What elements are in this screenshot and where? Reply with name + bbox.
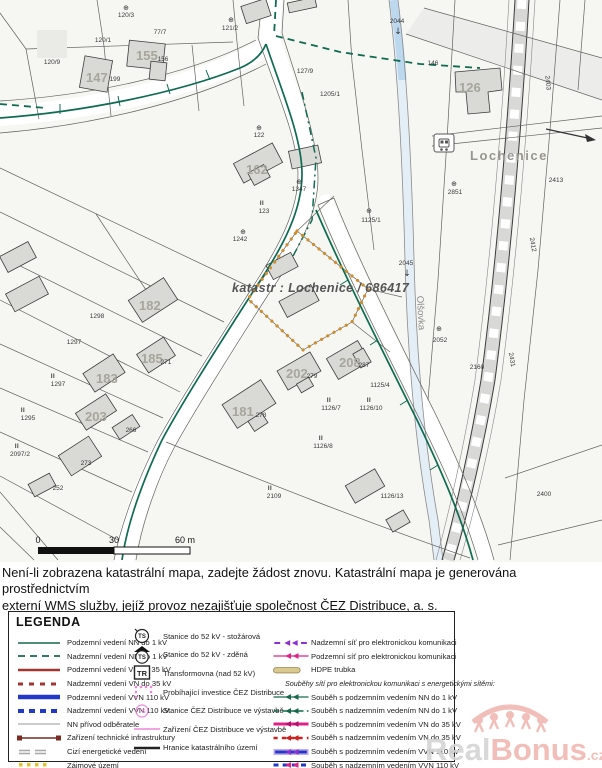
parcel-number: 1347	[292, 186, 307, 193]
svg-text:TS: TS	[138, 655, 146, 661]
legend-label: Stanice do 52 kV - stožárová	[163, 632, 260, 641]
legend-sample-foreign	[15, 746, 67, 758]
legend-label: HDPE trubka	[311, 665, 355, 674]
parcel-number: 252	[53, 485, 64, 492]
legend-item: Nadzemní vedení VVN 110 kV	[15, 704, 133, 718]
tree-symbol: ⊕	[366, 207, 372, 215]
legend-item: TSStanice do 52 kV - zděná	[133, 646, 271, 665]
parcel-number: 127/9	[297, 68, 314, 75]
parcel-number: 123	[259, 208, 270, 215]
parcel-number: 120/1	[95, 37, 112, 44]
parcel-number: 2403	[543, 75, 551, 90]
legend-label: NN přívod odběratele	[67, 720, 139, 729]
parcel-number: 120/3	[118, 12, 135, 19]
flow-arrow: ↓	[403, 269, 411, 279]
legend-item: Nadzemní vedení NN do 1 kV	[15, 650, 133, 664]
page: 0 30 60 m katastr : Lochenice / 686417 L…	[0, 0, 602, 768]
scale-label-end: 60 m	[175, 535, 195, 545]
parcel-number: 271	[161, 359, 172, 366]
parcel-number: 1126/8	[313, 443, 333, 450]
legend-item: Podzemní vedení VVN 110 kV	[15, 690, 133, 704]
parcel-number: 2400	[537, 491, 552, 498]
parcel-number: 1126/13	[380, 493, 403, 500]
structure-mark: II	[15, 444, 19, 450]
structure-mark: II	[327, 398, 331, 404]
scale-label-zero: 0	[35, 535, 40, 545]
legend-sample-blue-glow-arrow	[271, 746, 311, 758]
legend-item: Souběh s nadzemním vedením VN do 35 kV	[271, 731, 455, 745]
tree-symbol: ⊕	[296, 178, 302, 186]
legend-item: Nadzemní vedení VN do 35 kV	[15, 677, 133, 691]
legend-label: Souběh s nadzemním vedením NN do 1 kV	[311, 706, 457, 715]
parcel-number: 2413	[549, 177, 564, 184]
legend-label: Souběh s podzemním vedením VN do 35 kV	[311, 720, 461, 729]
legend-sample-tech-infra	[15, 732, 67, 744]
house-number: 155	[136, 48, 158, 63]
parcel-number: 77/7	[154, 29, 167, 36]
legend-item: Zařízení technické infrastruktury	[15, 731, 133, 745]
legend-item: Souběh s nadzemním vedením NN do 1 kV	[271, 704, 455, 718]
parcel-number: 1125/4	[370, 382, 390, 389]
legend-sample-purple-dash-arrow	[271, 637, 311, 649]
parcel-number: 199	[110, 76, 121, 83]
parcel-number: 1297	[51, 381, 66, 388]
legend-item: Podzemní vedení VN do 35 kV	[15, 663, 133, 677]
legend-label: Probíhající investice ČEZ Distribuce	[163, 688, 284, 697]
parcel-number: 122	[254, 132, 265, 139]
legend-item: HDPE trubka	[271, 663, 455, 677]
legend-item: Zájmové území	[15, 758, 133, 768]
legend-label: Souběh s nadzemním vedením VVN 110 kV	[311, 761, 459, 768]
wms-notice: Není-li zobrazena katastrální mapa, zade…	[2, 565, 600, 614]
legend-sample-magenta-thick-arrow	[271, 718, 311, 730]
house-number: 208	[339, 355, 361, 370]
tree-symbol: ⊕	[436, 325, 442, 333]
legend-item: Podzemní síť pro elektronickou komunikac…	[271, 650, 455, 664]
stream-label: Olšovka	[414, 296, 427, 332]
legend-item: Souběh s podzemním vedením VN do 35 kV	[271, 718, 455, 732]
legend-item: TSStanice ČEZ Distribuce ve výstavbě	[133, 701, 271, 720]
legend-sample-blue-dash	[15, 705, 67, 717]
watermark-tld: .cz	[587, 747, 602, 763]
legend-box: LEGENDA Podzemní vedení NN do 1 kVNadzem…	[8, 611, 455, 762]
scale-label-mid: 30	[109, 535, 119, 545]
legend-item: Souběh s nadzemním vedením VVN 110 kV	[271, 758, 455, 768]
legend-sample-blue-dash-arrow	[271, 759, 311, 768]
parcel-number: 1295	[21, 415, 36, 422]
legend-item: TSStanice do 52 kV - stožárová	[133, 627, 271, 646]
parcel-number: 2045	[399, 260, 414, 267]
legend-sample-red-dash	[15, 678, 67, 690]
legend-sample-green-dash-arrow	[271, 705, 311, 717]
legend-column-lines: Podzemní vedení NN do 1 kVNadzemní veden…	[15, 636, 133, 768]
town-label: Lochenice	[470, 148, 548, 163]
tree-symbol: ⊕	[256, 124, 262, 132]
legend-sample-red-dash-arrow	[271, 732, 311, 744]
house-number: 147	[86, 70, 108, 85]
legend-column-comm: Nadzemní síť pro elektronickou komunikac…	[271, 636, 455, 768]
legend-label: Souběhy sítí pro elektronickou komunikac…	[285, 679, 495, 688]
svg-text:TS: TS	[138, 634, 146, 640]
legend-label: Nadzemní síť pro elektronickou komunikac…	[311, 638, 457, 647]
parcel-number: 2851	[448, 189, 463, 196]
house-number: 182	[139, 298, 161, 313]
legend-item: Souběh s podzemním vedením NN do 1 kV	[271, 690, 455, 704]
legend-label: Zájmové území	[67, 761, 119, 768]
legend-sample-gray-solid	[15, 718, 67, 730]
structure-mark: II	[260, 201, 264, 207]
legend-item: Hranice katastrálního území	[133, 739, 271, 758]
legend-sample-tr-box: TR	[133, 664, 163, 682]
legend-sample-red-solid	[15, 664, 67, 676]
legend-label: Stanice ČEZ Distribuce ve výstavbě	[163, 706, 284, 715]
parcel-number: 1242	[233, 236, 248, 243]
train-station-icon	[434, 134, 454, 152]
parcel-number: 287	[359, 362, 370, 369]
legend-sample-ts-pink: TS	[133, 702, 163, 720]
structure-mark: II	[367, 398, 371, 404]
parcel-number: 156	[158, 56, 169, 63]
legend-item: Probíhající investice ČEZ Distribuce	[133, 683, 271, 702]
legend-item: Souběh s podzemním vedením VVN 110 kV	[271, 745, 455, 759]
legend-sample-invest-dotted	[133, 683, 163, 701]
legend-label: Souběh s podzemním vedením NN do 1 kV	[311, 693, 457, 702]
parcel-number: 2044	[390, 18, 405, 25]
house-number: 202	[286, 366, 308, 381]
legend-title: LEGENDA	[16, 615, 81, 629]
parcel-number: 279	[307, 373, 318, 380]
tree-symbol: ⊕	[228, 16, 234, 24]
legend-sample-green-dash	[15, 650, 67, 662]
parcel-number: 2097/2	[10, 451, 30, 458]
legend-sample-magenta-arrow	[271, 650, 311, 662]
svg-text:TS: TS	[138, 709, 145, 715]
flow-arrow: ↓	[394, 27, 402, 37]
legend-item: Souběhy sítí pro elektronickou komunikac…	[271, 677, 455, 691]
parcel-number: 2109	[267, 493, 282, 500]
parcel-number: 2052	[433, 337, 448, 344]
house-number: 185	[141, 351, 163, 366]
legend-column-stations: TSStanice do 52 kV - stožárováTSStanice …	[133, 627, 271, 757]
legend-sample-hdpe	[271, 664, 311, 676]
watermark-logo	[473, 707, 547, 732]
tree-symbol: ⊕	[451, 180, 457, 188]
legend-label: Zařízení ČEZ Distribuce ve výstavbě	[163, 725, 286, 734]
legend-item: Cizí energetické vedení	[15, 745, 133, 759]
legend-sample-interest-dots	[15, 759, 67, 768]
legend-label: Stanice do 52 kV - zděná	[163, 650, 248, 659]
parcel-number: 1125/1	[361, 217, 381, 224]
legend-label: Souběh s nadzemním vedením VN do 35 kV	[311, 733, 461, 742]
structure-mark: II	[319, 436, 323, 442]
legend-sample-ts-masonry: TS	[133, 646, 163, 664]
parcel-number: 1205/1	[320, 91, 340, 98]
legend-item: NN přívod odběratele	[15, 718, 133, 732]
parcel-number: 266	[126, 427, 137, 434]
parcel-number: 146	[428, 60, 439, 67]
house-number: 203	[85, 409, 107, 424]
parcel-number: 273	[81, 460, 92, 467]
tree-symbol: ⊕	[123, 4, 129, 12]
legend-label: Souběh s podzemním vedením VVN 110 kV	[311, 747, 459, 756]
structure-mark: II	[21, 408, 25, 414]
parcel-number: 121/2	[222, 25, 239, 32]
map-canvas[interactable]: 0 30 60 m katastr : Lochenice / 686417 L…	[0, 0, 602, 562]
parcel-number: 1297	[67, 339, 82, 346]
parcel-number: 1298	[90, 313, 105, 320]
legend-item: Nadzemní síť pro elektronickou komunikac…	[271, 636, 455, 650]
kataster-label: katastr : Lochenice / 686417	[232, 281, 410, 295]
parcel-number: 1126/7	[321, 405, 341, 412]
parcel-number: 120/9	[44, 59, 61, 66]
parcel-number: 278	[256, 412, 267, 419]
legend-label: Transformovna (nad 52 kV)	[163, 669, 255, 678]
watermark-part2: Bonus	[490, 732, 586, 767]
structure-mark: II	[51, 374, 55, 380]
parcel-number: 2160	[470, 364, 485, 371]
tree-symbol: ⊕	[240, 228, 246, 236]
house-number: 181	[232, 404, 254, 419]
svg-text:TR: TR	[137, 669, 148, 678]
legend-label: Podzemní síť pro elektronickou komunikac…	[311, 652, 456, 661]
parcel-number: 1126/10	[359, 405, 382, 412]
house-number: 162	[246, 162, 268, 177]
house-number: 126	[459, 80, 481, 95]
structure-mark: II	[268, 486, 272, 492]
legend-sample-blue-thick	[15, 691, 67, 703]
legend-sample-green-arrow	[271, 691, 311, 703]
legend-item: Podzemní vedení NN do 1 kV	[15, 636, 133, 650]
legend-sample-pink-line	[133, 720, 163, 738]
wms-notice-line1: Není-li zobrazena katastrální mapa, zade…	[2, 565, 516, 596]
legend-sample-ts-circle: TS	[133, 627, 163, 645]
legend-label: Hranice katastrálního území	[163, 743, 258, 752]
house-number: 183	[96, 371, 118, 386]
legend-item: Zařízení ČEZ Distribuce ve výstavbě	[133, 720, 271, 739]
legend-item: TRTransformovna (nad 52 kV)	[133, 664, 271, 683]
legend-sample-black-line	[133, 739, 163, 757]
legend-sample-green-solid	[15, 637, 67, 649]
